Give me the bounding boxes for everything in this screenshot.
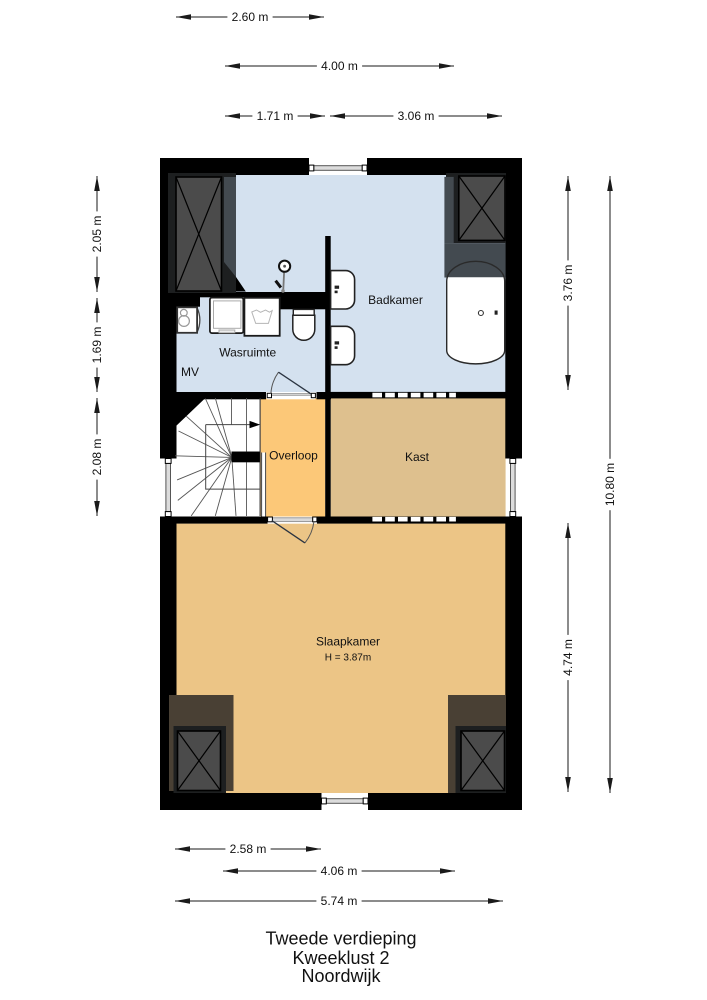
- svg-text:2.08 m: 2.08 m: [90, 439, 104, 476]
- svg-text:1.69 m: 1.69 m: [90, 327, 104, 364]
- svg-text:4.00 m: 4.00 m: [321, 59, 358, 73]
- svg-text:3.06 m: 3.06 m: [398, 109, 435, 123]
- svg-text:Kast: Kast: [405, 450, 430, 464]
- svg-text:4.74 m: 4.74 m: [561, 639, 575, 676]
- svg-text:Overloop: Overloop: [269, 449, 318, 463]
- svg-text:Badkamer: Badkamer: [368, 293, 423, 307]
- svg-text:5.74 m: 5.74 m: [321, 894, 358, 908]
- svg-text:1.71 m: 1.71 m: [257, 109, 294, 123]
- svg-text:Wasruimte: Wasruimte: [219, 346, 276, 360]
- svg-text:3.76 m: 3.76 m: [561, 265, 575, 302]
- svg-text:2.05 m: 2.05 m: [90, 216, 104, 253]
- svg-text:MV: MV: [181, 365, 199, 379]
- svg-text:Tweede verdieping: Tweede verdieping: [265, 929, 416, 949]
- svg-text:4.06 m: 4.06 m: [321, 864, 358, 878]
- svg-text:2.58 m: 2.58 m: [230, 842, 267, 856]
- svg-text:2.60 m: 2.60 m: [232, 10, 269, 24]
- svg-text:Slaapkamer: Slaapkamer: [316, 635, 380, 649]
- svg-text:H = 3.87m: H = 3.87m: [325, 653, 371, 664]
- svg-text:Noordwijk: Noordwijk: [301, 966, 381, 986]
- svg-text:10.80 m: 10.80 m: [603, 463, 617, 506]
